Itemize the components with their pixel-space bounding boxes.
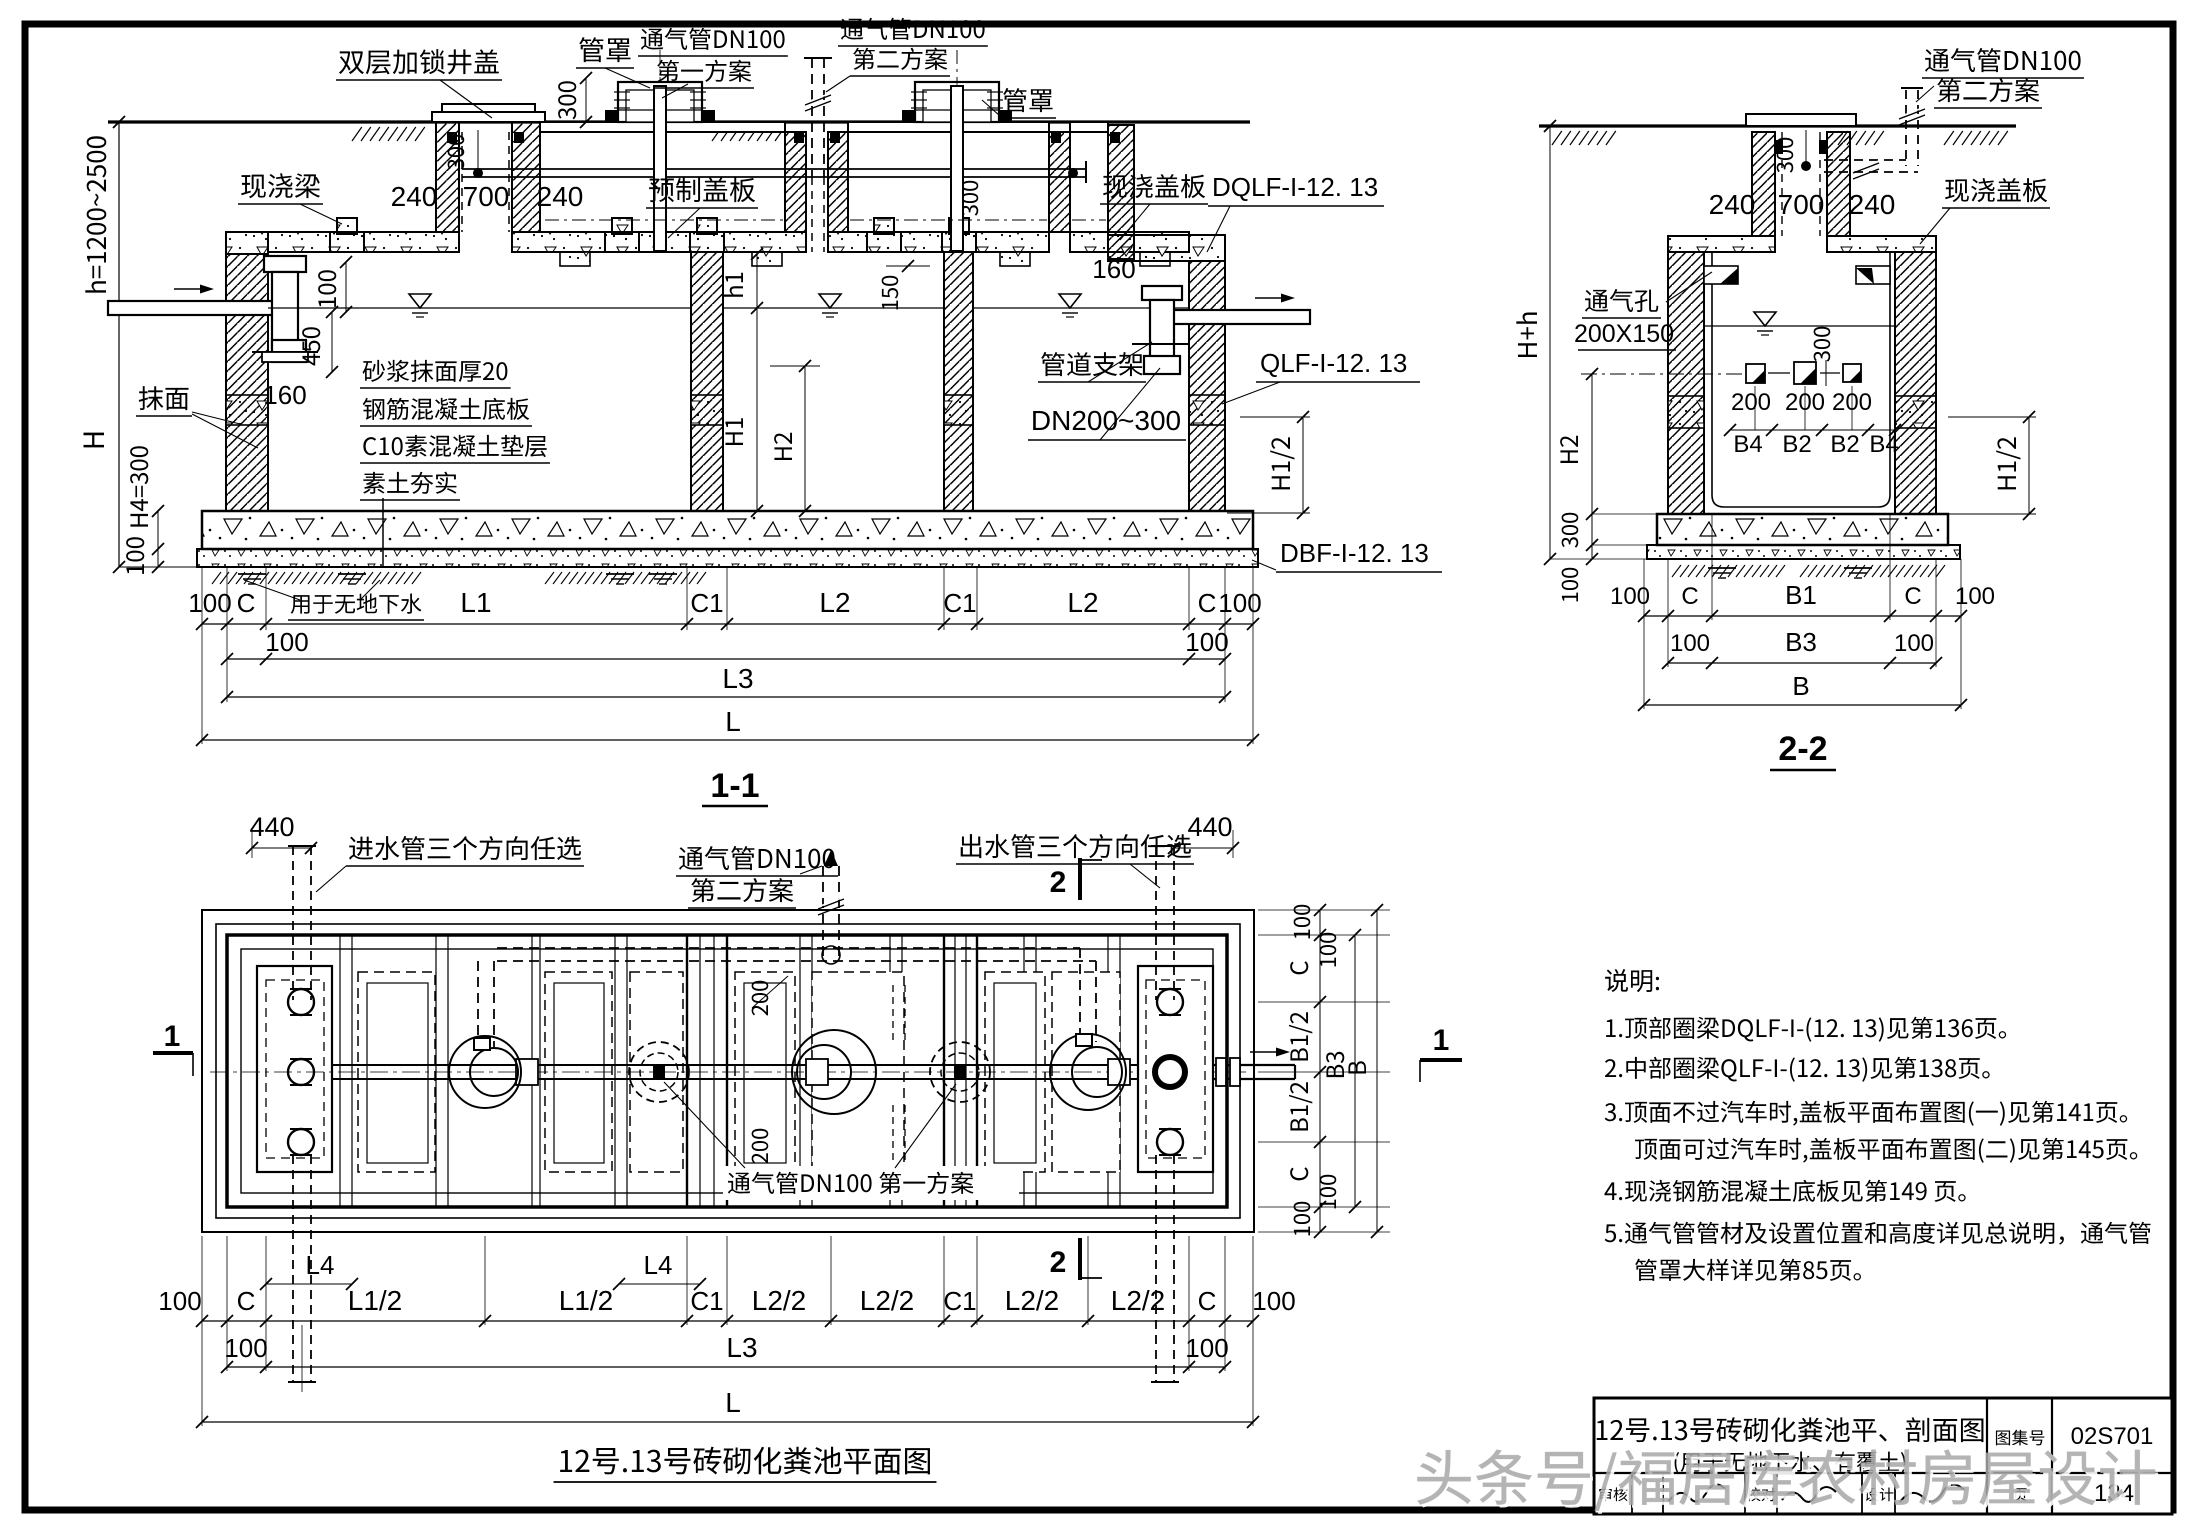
svg-text:B3: B3 <box>1785 627 1817 657</box>
svg-text:L1: L1 <box>460 587 491 618</box>
svg-text:160: 160 <box>263 380 306 410</box>
svg-text:100: 100 <box>224 1333 267 1363</box>
svg-text:L2/2: L2/2 <box>752 1285 807 1316</box>
svg-text:C1: C1 <box>690 1286 723 1316</box>
svg-text:L1/2: L1/2 <box>348 1285 403 1316</box>
svg-text:C: C <box>237 1286 256 1316</box>
svg-text:200: 200 <box>1785 389 1825 416</box>
svg-text:C1: C1 <box>943 588 976 618</box>
svg-text:100: 100 <box>1218 588 1261 618</box>
svg-text:02S701: 02S701 <box>2071 1423 2154 1450</box>
svg-text:L2/2: L2/2 <box>860 1285 915 1316</box>
svg-text:100: 100 <box>1955 583 1995 610</box>
svg-text:240: 240 <box>1709 189 1756 220</box>
svg-text:160: 160 <box>1092 254 1135 284</box>
svg-text:700: 700 <box>1778 189 1825 220</box>
svg-text:100: 100 <box>1610 583 1650 610</box>
svg-text:B2: B2 <box>1782 431 1811 458</box>
svg-text:DN200~300: DN200~300 <box>1031 405 1181 436</box>
svg-text:L2/2: L2/2 <box>1111 1285 1166 1316</box>
svg-text:700: 700 <box>463 181 510 212</box>
svg-text:200: 200 <box>1832 389 1872 416</box>
svg-text:100: 100 <box>1185 627 1228 657</box>
svg-text:2: 2 <box>1050 866 1067 899</box>
svg-text:L: L <box>725 1387 741 1418</box>
svg-text:240: 240 <box>1849 189 1896 220</box>
svg-text:100: 100 <box>1252 1286 1295 1316</box>
svg-text:100: 100 <box>1185 1333 1228 1363</box>
svg-text:L2: L2 <box>1067 587 1098 618</box>
svg-text:DBF-I-12. 13: DBF-I-12. 13 <box>1280 538 1429 568</box>
svg-text:2: 2 <box>1050 1246 1067 1279</box>
svg-text:B4: B4 <box>1869 431 1898 458</box>
svg-text:L3: L3 <box>726 1332 757 1363</box>
svg-text:B1: B1 <box>1785 580 1817 610</box>
svg-text:100: 100 <box>1670 630 1710 657</box>
svg-text:1: 1 <box>1433 1024 1450 1057</box>
svg-text:B: B <box>1792 671 1809 701</box>
svg-text:100: 100 <box>188 588 231 618</box>
svg-text:C1: C1 <box>943 1286 976 1316</box>
svg-text:1: 1 <box>164 1020 181 1053</box>
svg-text:L1/2: L1/2 <box>559 1285 614 1316</box>
svg-text:B4: B4 <box>1733 431 1762 458</box>
svg-text:DQLF-I-12. 13: DQLF-I-12. 13 <box>1212 172 1378 202</box>
svg-text:C: C <box>237 588 256 618</box>
svg-text:1-1: 1-1 <box>710 767 759 805</box>
svg-text:L: L <box>725 706 741 737</box>
svg-text:L2: L2 <box>819 587 850 618</box>
svg-text:C1: C1 <box>690 588 723 618</box>
svg-text:C: C <box>1681 583 1698 610</box>
svg-text:200: 200 <box>1731 389 1771 416</box>
svg-text:L3: L3 <box>722 663 753 694</box>
svg-text:C: C <box>1198 1286 1217 1316</box>
svg-text:100: 100 <box>265 627 308 657</box>
svg-text:QLF-I-12. 13: QLF-I-12. 13 <box>1260 348 1407 378</box>
svg-text:L4: L4 <box>306 1250 335 1280</box>
svg-text:C: C <box>1198 588 1217 618</box>
svg-text:240: 240 <box>537 181 584 212</box>
svg-text:B2: B2 <box>1830 431 1859 458</box>
svg-text:200X150: 200X150 <box>1574 320 1674 348</box>
svg-text:240: 240 <box>391 181 438 212</box>
svg-text:440: 440 <box>1187 812 1232 842</box>
svg-text:L2/2: L2/2 <box>1005 1285 1060 1316</box>
svg-text:L4: L4 <box>644 1250 673 1280</box>
svg-text:100: 100 <box>1894 630 1934 657</box>
svg-text:440: 440 <box>249 812 294 842</box>
svg-text:C: C <box>1904 583 1921 610</box>
svg-text:100: 100 <box>158 1286 201 1316</box>
svg-text:2-2: 2-2 <box>1778 730 1827 768</box>
